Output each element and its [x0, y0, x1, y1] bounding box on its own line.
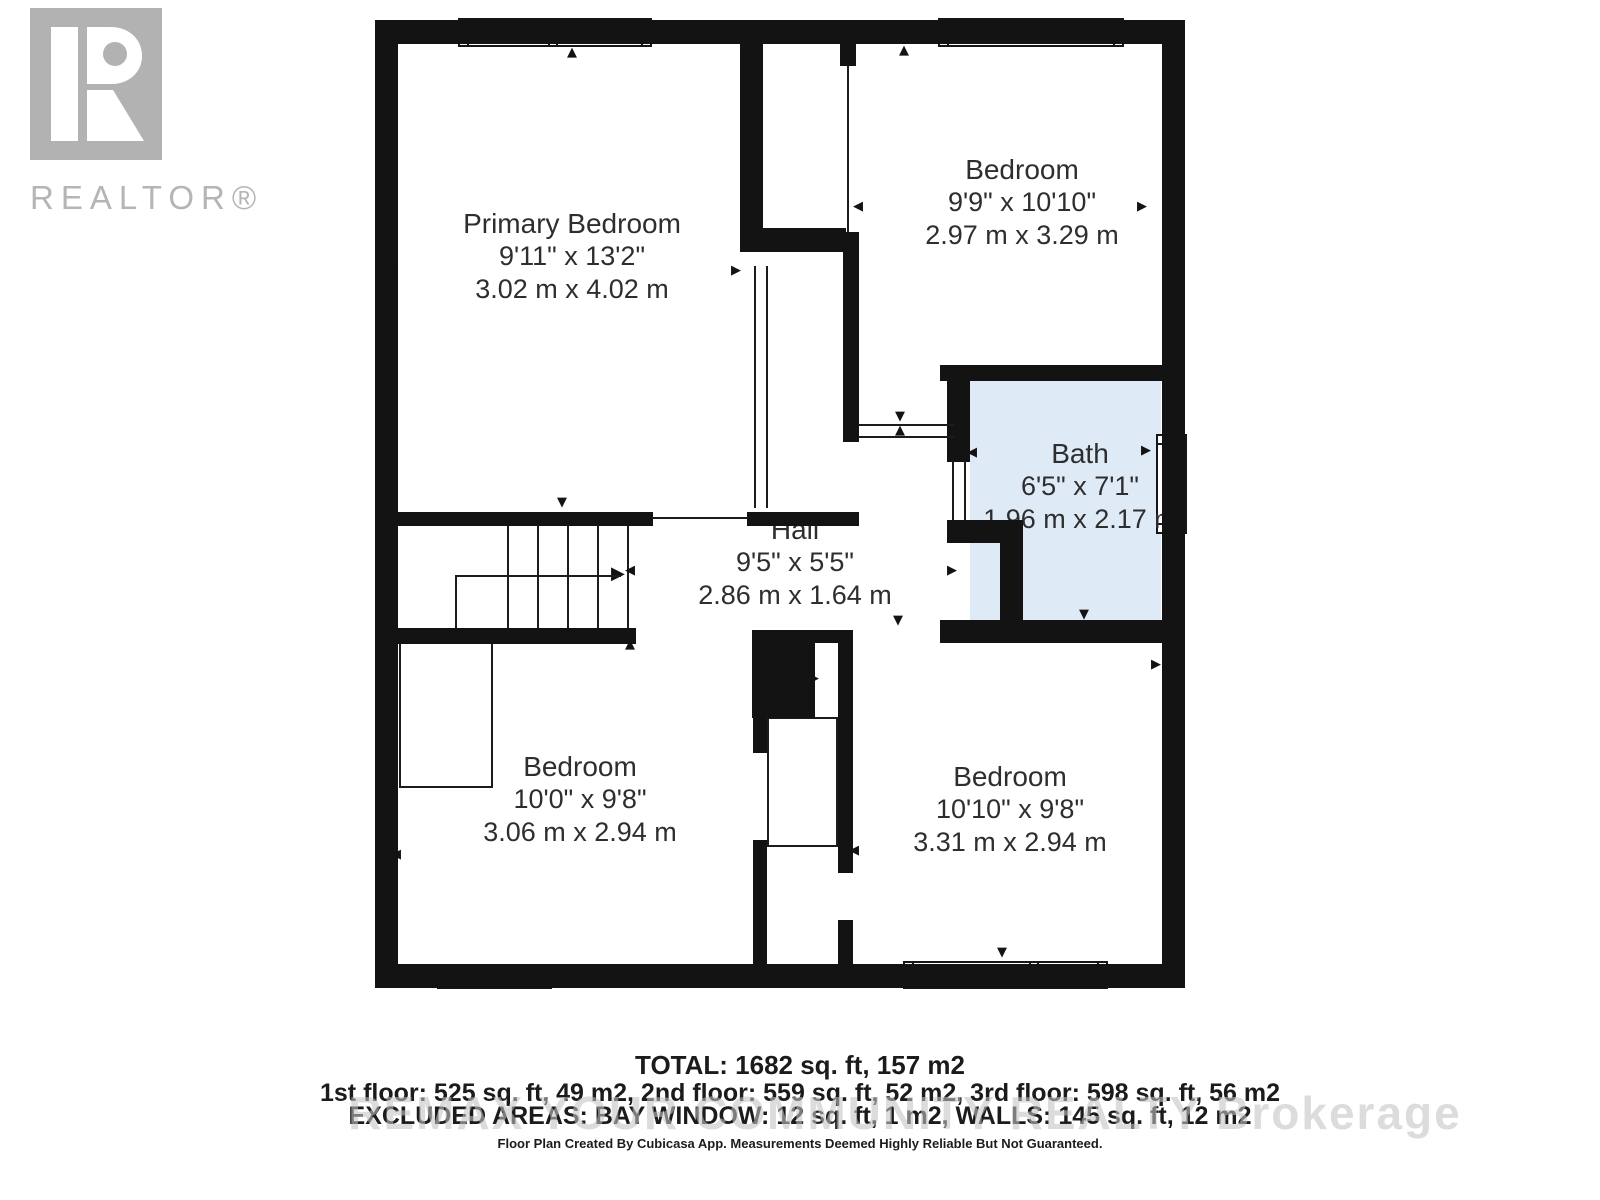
room-dim-imperial: 6'5" x 7'1" [983, 470, 1177, 503]
room-name: Primary Bedroom [463, 207, 681, 240]
room-dim-metric: 3.31 m x 2.94 m [913, 826, 1107, 859]
wall [740, 44, 763, 246]
center-closet-outline [767, 717, 838, 847]
thin-line [858, 436, 954, 438]
wall [1162, 20, 1185, 988]
measure-arrow-icon: ▶ [947, 564, 957, 577]
room-dim-imperial: 9'5" x 5'5" [698, 546, 892, 579]
room-label-primary-bedroom: Primary Bedroom 9'11" x 13'2" 3.02 m x 4… [463, 207, 681, 306]
wall [840, 44, 856, 66]
room-dim-imperial: 10'0" x 9'8" [483, 783, 677, 816]
wall [753, 717, 767, 753]
room-dim-imperial: 9'9" x 10'10" [925, 186, 1119, 219]
measure-arrow-icon: ▲ [1079, 366, 1089, 379]
measure-arrow-icon: ▶ [1137, 200, 1147, 213]
room-name: Bedroom [483, 750, 677, 783]
room-label-bedroom-bottom-right: Bedroom 10'10" x 9'8" 3.31 m x 2.94 m [913, 760, 1107, 859]
thin-line [847, 66, 849, 232]
thin-line [652, 517, 748, 519]
measure-arrow-icon: ▲ [567, 46, 577, 59]
measure-arrow-icon: ◀ [967, 446, 977, 459]
realtor-r-icon [30, 8, 162, 160]
wall [375, 20, 398, 988]
measure-arrow-icon: ▶ [1151, 658, 1161, 671]
room-dim-metric: 3.06 m x 2.94 m [483, 816, 677, 849]
brokerage-watermark: REMAX YOUR COMMUNITY REALTY Brokerage [348, 1086, 1461, 1140]
wall [843, 232, 859, 442]
floor-plan: ▶ Primary Bedroom 9'11" x 13'2" 3.02 m x… [375, 20, 1185, 988]
wall [838, 643, 853, 873]
measure-arrow-icon: ▲ [625, 638, 635, 651]
thin-line [858, 424, 954, 426]
measure-arrow-icon: ◀ [387, 264, 397, 277]
thin-line [537, 526, 539, 628]
measure-arrow-icon: ▲ [895, 424, 905, 437]
thin-line [567, 526, 569, 628]
wall [375, 964, 1185, 988]
realtor-logo-text: REALTOR® [30, 179, 230, 217]
room-label-bedroom-top-right: Bedroom 9'9" x 10'10" 2.97 m x 3.29 m [925, 153, 1119, 252]
room-dim-metric: 2.97 m x 3.29 m [925, 219, 1119, 252]
measure-arrow-icon: ▼ [1079, 608, 1089, 621]
measure-arrow-icon: ▼ [997, 946, 1007, 959]
room-dim-imperial: 9'11" x 13'2" [463, 240, 681, 273]
thin-line [766, 266, 768, 508]
stair-void-outline [399, 640, 493, 788]
measure-arrow-icon: ▼ [893, 614, 903, 627]
wall [838, 920, 853, 964]
measure-arrow-icon: ▶ [809, 672, 819, 685]
wall [940, 620, 1162, 643]
thin-line [952, 460, 954, 520]
measure-arrow-icon: ◀ [849, 844, 859, 857]
measure-arrow-icon: ◀ [391, 848, 401, 861]
room-label-hall: Hall 9'5" x 5'5" 2.86 m x 1.64 m [698, 513, 892, 612]
wall [740, 228, 846, 252]
room-name: Bedroom [913, 760, 1107, 793]
measure-arrow-icon: ▼ [557, 496, 567, 509]
wall [940, 365, 1162, 381]
room-dim-imperial: 10'10" x 9'8" [913, 793, 1107, 826]
wall [752, 640, 815, 718]
measure-arrow-icon: ◀ [853, 200, 863, 213]
thin-line [754, 266, 756, 508]
thin-line [455, 575, 457, 628]
thin-line [597, 526, 599, 628]
wall [375, 20, 1185, 44]
total-area-text: TOTAL: 1682 sq. ft, 157 m2 [635, 1050, 965, 1081]
measure-arrow-icon: ◀ [625, 564, 635, 577]
realtor-logo: REALTOR® [30, 8, 230, 217]
floor-plan-page: REALTOR® ▶ Primary Bedroom 9'11 [0, 0, 1600, 1200]
measure-arrow-icon: ▼ [895, 410, 905, 423]
thin-line [455, 575, 621, 577]
thin-line [964, 460, 966, 520]
room-dim-metric: 2.86 m x 1.64 m [698, 579, 892, 612]
measure-arrow-icon: ▲ [899, 44, 909, 57]
room-label-bedroom-bottom-left: Bedroom 10'0" x 9'8" 3.06 m x 2.94 m [483, 750, 677, 849]
wall [398, 512, 653, 526]
wall [747, 512, 859, 526]
wall [947, 520, 1023, 543]
wall [398, 628, 636, 644]
room-dim-metric: 3.02 m x 4.02 m [463, 273, 681, 306]
thin-line [507, 526, 509, 628]
measure-arrow-icon: ▶ [731, 264, 741, 277]
wall [753, 840, 767, 964]
measure-arrow-icon: ▼ [535, 968, 545, 981]
room-name: Bedroom [925, 153, 1119, 186]
measure-arrow-icon: ▶ [1141, 444, 1151, 457]
stair-direction-arrow-icon: ▶ [611, 565, 625, 583]
